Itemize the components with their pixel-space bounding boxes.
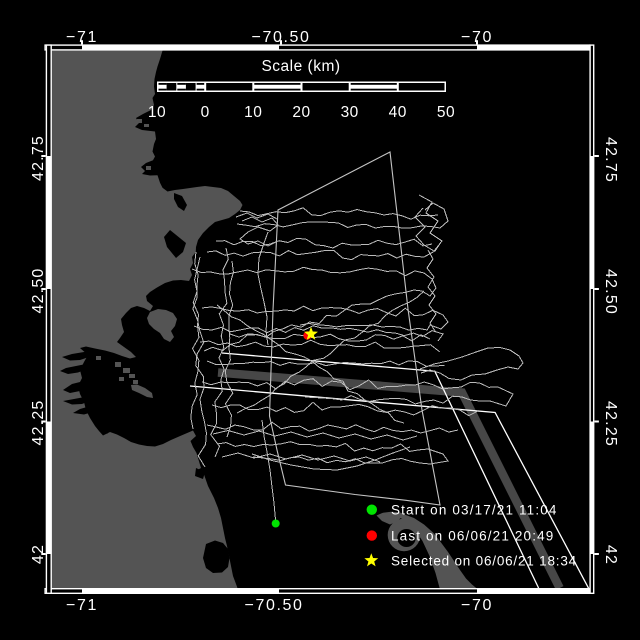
svg-text:10: 10 [148,104,166,121]
svg-text:42.25: 42.25 [602,401,619,447]
svg-text:Scale (km): Scale (km) [261,58,340,75]
svg-text:−71: −71 [66,597,98,614]
svg-text:−70.50: −70.50 [252,29,311,46]
svg-text:40: 40 [389,104,407,121]
svg-text:50: 50 [437,104,455,121]
svg-text:Selected on 06/06/21 18:34: Selected on 06/06/21 18:34 [391,554,577,569]
svg-text:−71: −71 [66,29,98,46]
svg-text:Last on 06/06/21 20:49: Last on 06/06/21 20:49 [391,529,554,544]
svg-text:42.25: 42.25 [30,399,47,445]
svg-text:−70: −70 [461,597,493,614]
svg-text:42.50: 42.50 [602,269,619,315]
svg-text:−70: −70 [461,29,493,46]
svg-text:10: 10 [244,104,262,121]
svg-text:42: 42 [30,544,47,564]
svg-text:Start on 03/17/21 11:04: Start on 03/17/21 11:04 [391,503,558,518]
svg-text:42.75: 42.75 [30,135,47,181]
svg-text:30: 30 [341,104,359,121]
svg-text:0: 0 [201,104,210,121]
svg-text:42: 42 [602,545,619,565]
svg-text:−70.50: −70.50 [245,597,304,614]
svg-text:42.75: 42.75 [602,137,619,183]
svg-text:42.50: 42.50 [30,267,47,313]
svg-text:20: 20 [292,104,310,121]
